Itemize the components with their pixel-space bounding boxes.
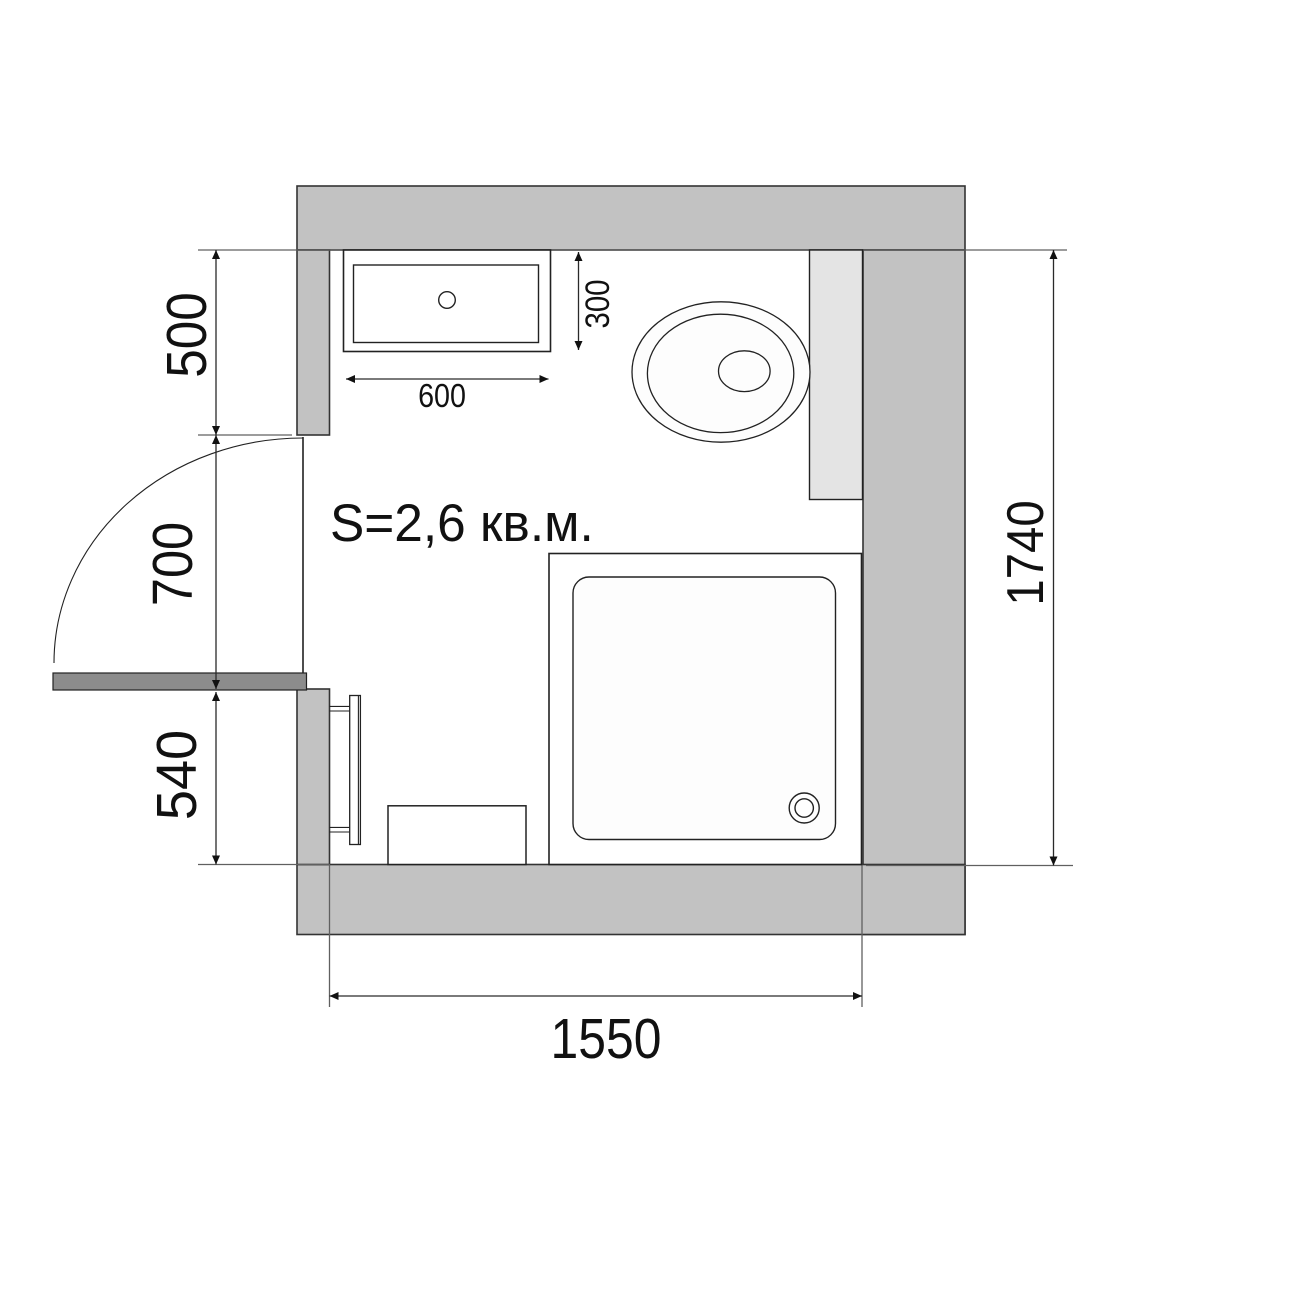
svg-text:S=2,6 кв.м.: S=2,6 кв.м. — [330, 494, 594, 553]
svg-text:300: 300 — [578, 279, 617, 328]
svg-text:700: 700 — [141, 522, 205, 606]
svg-text:1740: 1740 — [996, 500, 1055, 605]
svg-text:500: 500 — [156, 292, 219, 378]
svg-text:1550: 1550 — [551, 1008, 662, 1071]
svg-text:540: 540 — [145, 730, 209, 820]
svg-text:600: 600 — [418, 377, 466, 414]
